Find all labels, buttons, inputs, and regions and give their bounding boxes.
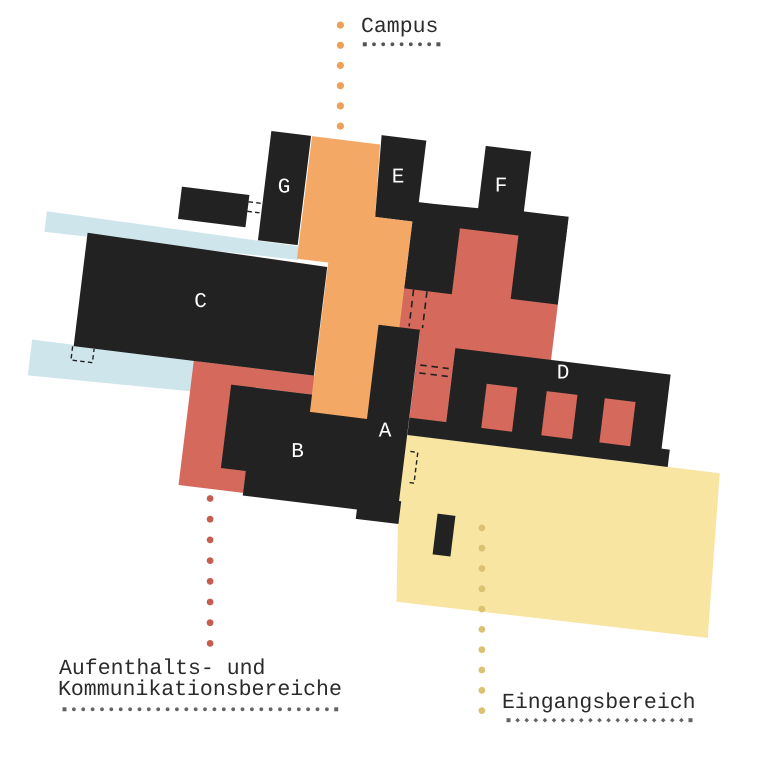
- svg-text:Eingangsbereich: Eingangsbereich: [502, 691, 696, 715]
- svg-text:C: C: [194, 291, 207, 314]
- svg-text:E: E: [392, 167, 405, 190]
- svg-text:Campus: Campus: [361, 15, 438, 39]
- svg-text:A: A: [379, 421, 392, 444]
- svg-text:B: B: [291, 441, 304, 464]
- svg-text:Kommunikationsbereiche: Kommunikationsbereiche: [58, 678, 342, 702]
- svg-text:G: G: [278, 177, 291, 200]
- svg-text:D: D: [557, 363, 570, 386]
- svg-text:F: F: [495, 176, 508, 199]
